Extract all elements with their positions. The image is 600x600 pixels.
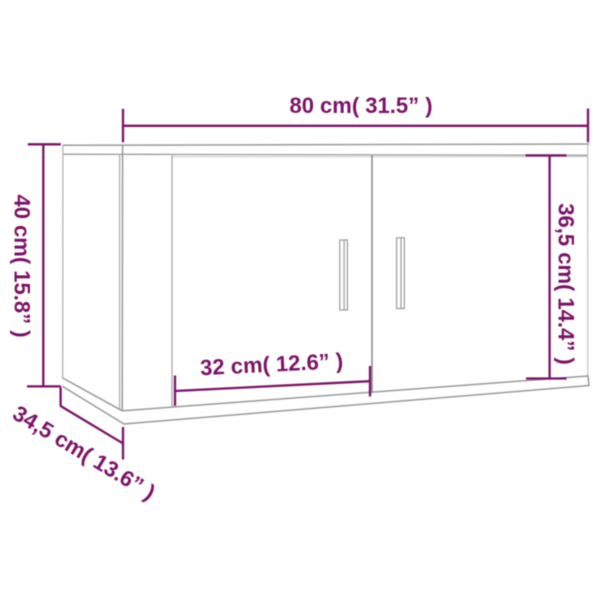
- svg-text:34,5 cm( 13.6” ): 34,5 cm( 13.6” ): [8, 400, 159, 505]
- svg-text:32 cm( 12.6” ): 32 cm( 12.6” ): [200, 348, 344, 380]
- svg-text:80 cm( 31.5” ): 80 cm( 31.5” ): [289, 93, 432, 118]
- svg-text:36,5 cm( 14.4” ): 36,5 cm( 14.4” ): [554, 203, 579, 364]
- svg-text:40 cm( 15.8” ): 40 cm( 15.8” ): [10, 194, 35, 337]
